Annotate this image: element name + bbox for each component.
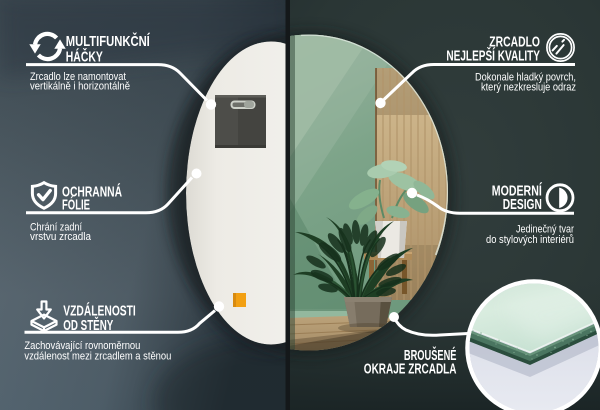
- svg-text:DESIGN: DESIGN: [503, 196, 542, 213]
- svg-text:vertikálně i horizontálně: vertikálně i horizontálně: [30, 81, 130, 93]
- svg-text:FÓLIE: FÓLIE: [62, 195, 90, 213]
- svg-text:který nezkresluje odraz: který nezkresluje odraz: [481, 82, 576, 94]
- svg-text:HÁČKY: HÁČKY: [66, 47, 103, 65]
- svg-text:OKRAJE ZRCADLA: OKRAJE ZRCADLA: [364, 362, 457, 378]
- svg-text:MULTIFUNKČNÍ: MULTIFUNKČNÍ: [66, 32, 151, 50]
- svg-text:OD STĚNY: OD STĚNY: [63, 316, 113, 334]
- svg-text:do stylových interiérů: do stylových interiérů: [486, 234, 574, 246]
- svg-text:NEJLEPŠÍ KVALITY: NEJLEPŠÍ KVALITY: [446, 46, 540, 64]
- svg-text:vrstvu zrcadla: vrstvu zrcadla: [30, 231, 92, 243]
- svg-text:vzdálenost mezi zrcadlem a stě: vzdálenost mezi zrcadlem a stěnou: [24, 351, 171, 363]
